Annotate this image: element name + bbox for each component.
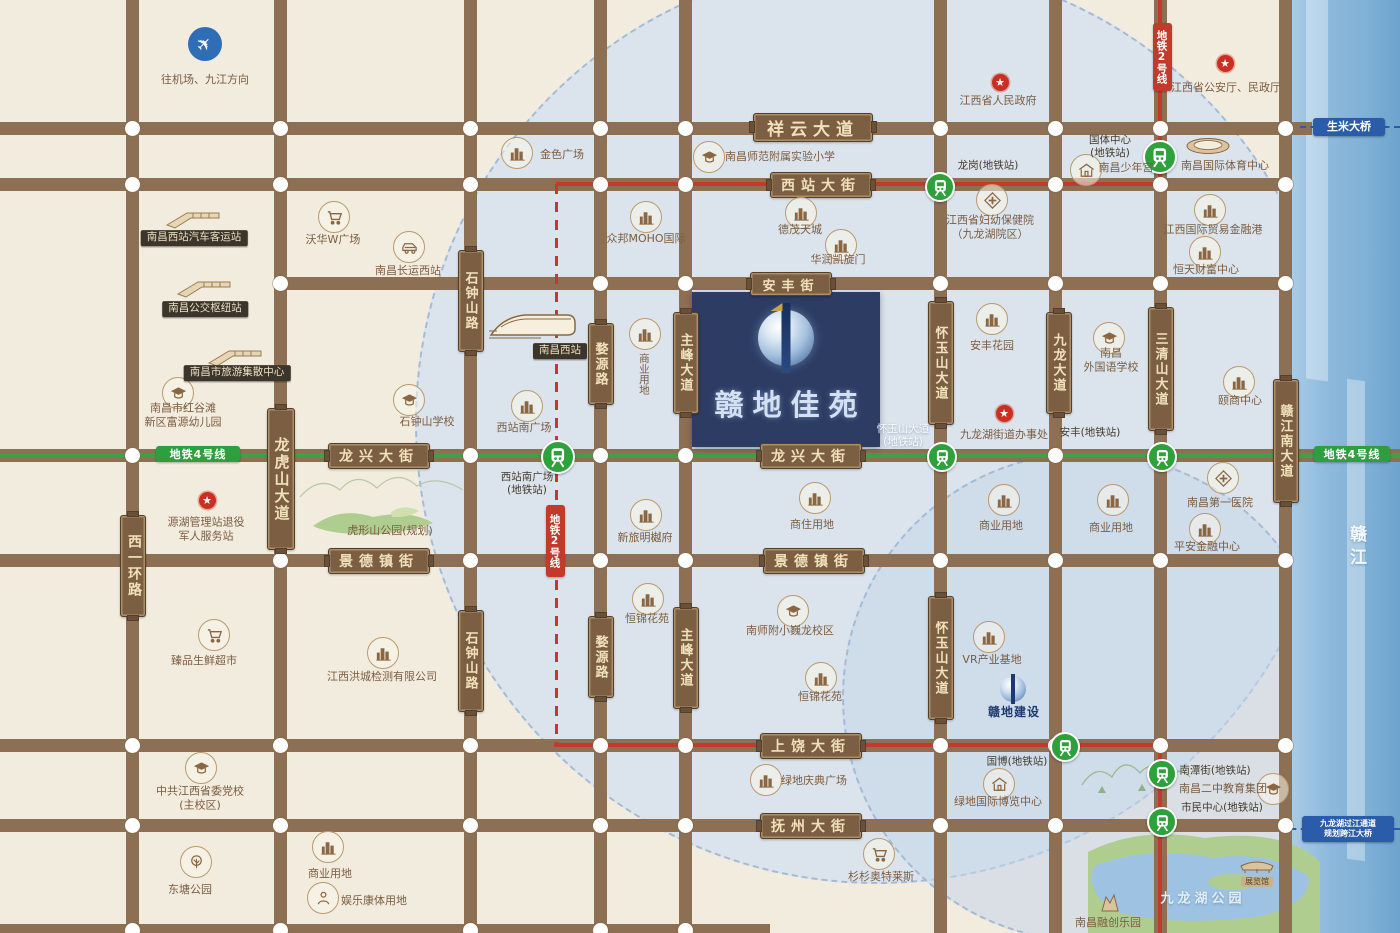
landmark-label: 绿地庆典广场: [781, 774, 847, 788]
metro-station-icon: [1147, 442, 1177, 472]
intersection-dot: [463, 121, 478, 136]
bldg-icon: [799, 482, 831, 514]
intersection-dot: [1278, 553, 1293, 568]
road-sign: 三清山大道: [1148, 307, 1174, 431]
road-vertical: [594, 0, 607, 933]
landmark-label: 江西国际贸易金融港: [1164, 223, 1263, 237]
landmark-label: 颐商中心: [1218, 394, 1262, 408]
stadium-icon: [1185, 137, 1231, 155]
intersection-dot: [125, 448, 140, 463]
landmark-label: 恒锦花苑: [798, 690, 842, 704]
intersection-dot: [273, 923, 288, 933]
river-name: 赣江: [1344, 525, 1369, 571]
gov-star-icon: ★: [199, 492, 216, 509]
property-block: 赣地佳苑: [692, 292, 880, 447]
intersection-dot: [933, 121, 948, 136]
landmark-label: 商业用地: [636, 353, 650, 395]
metro-station-icon: [1147, 759, 1177, 789]
bus-terminal-icon: [172, 274, 236, 300]
cross-icon: [976, 184, 1008, 216]
intersection-dot: [273, 276, 288, 291]
landmark-label: 江西洪城检测有限公司: [327, 670, 437, 684]
road-sign: 上饶大街: [760, 733, 862, 759]
metro-station-label: 国体中心 (地铁站): [1089, 134, 1131, 160]
landmark-label: 南昌市旅游集散中心: [184, 365, 291, 381]
intersection-dot: [678, 177, 693, 192]
landmark-label: 往机场、九江方向: [161, 73, 249, 87]
property-logo-icon: [758, 310, 814, 366]
highspeed-train-icon: [487, 307, 579, 341]
intersection-dot: [933, 276, 948, 291]
metro-line-badge: 地铁4号线: [156, 446, 240, 462]
metro-line-badge: 地铁4号线: [1314, 446, 1390, 462]
landmark-label: 南昌西站: [533, 343, 587, 359]
intersection-dot: [463, 738, 478, 753]
road-sign: 龙兴大街: [328, 443, 430, 469]
landmark-label: 臻品生鲜超市: [171, 654, 237, 668]
school-icon: [185, 752, 217, 784]
road-sign: 龙兴大街: [760, 443, 862, 469]
intersection-dot: [1048, 553, 1063, 568]
metro-station-icon: [1050, 732, 1080, 762]
road-sign: 婺源路: [588, 323, 614, 405]
cart-icon: [863, 838, 895, 870]
road-vertical: [679, 0, 692, 933]
metro-station-label: 市民中心(地铁站): [1181, 801, 1263, 814]
road-sign: 九龙大道: [1046, 312, 1072, 414]
landmark-label: 赣地建设: [988, 705, 1040, 721]
intersection-dot: [593, 923, 608, 933]
intersection-dot: [593, 276, 608, 291]
intersection-dot: [678, 553, 693, 568]
landmark-label: 沃华W广场: [306, 233, 361, 247]
intersection-dot: [933, 738, 948, 753]
road-sign: 祥云大道: [753, 113, 873, 142]
landmark-label: 商业用地: [979, 519, 1023, 533]
tree-icon: [180, 846, 212, 878]
intersection-dot: [273, 818, 288, 833]
intersection-dot: [933, 818, 948, 833]
school-icon: [777, 595, 809, 627]
intersection-dot: [1153, 553, 1168, 568]
property-name: 赣地佳苑: [705, 382, 866, 424]
intersection-dot: [463, 177, 478, 192]
road-sign: 赣江南大道: [1273, 379, 1299, 503]
road-sign: 西站大街: [770, 172, 872, 198]
car-icon: [393, 231, 425, 263]
landmark-label: 新旅明樾府: [618, 531, 673, 545]
intersection-dot: [1048, 448, 1063, 463]
landmark-label: 南昌长运西站: [375, 264, 441, 278]
bldg-icon: [630, 499, 662, 531]
landmark-label: 南昌师范附属实验小学: [725, 150, 835, 164]
intersection-dot: [593, 738, 608, 753]
landmark-label: 恒锦花苑: [625, 612, 669, 626]
landmark-label: 江西省妇幼保健院 （九龙湖院区）: [946, 214, 1034, 243]
landmark-label: 东塘公园: [168, 883, 212, 897]
landmark-label: 德茂天城: [778, 223, 822, 237]
metro-station-label: 安丰(地铁站): [1060, 426, 1121, 439]
intersection-dot: [1048, 818, 1063, 833]
landmark-label: 石钟山学校: [400, 415, 455, 429]
airplane-icon: ✈: [188, 27, 222, 61]
civic-building-icon: [1237, 856, 1277, 874]
metro-station-label: 西站南广场 (地铁站): [501, 471, 554, 497]
landmark-label: 绿地国际博览中心: [954, 795, 1042, 809]
landmark-label: 西站南广场: [497, 421, 552, 435]
landmark-label: 金色广场: [540, 148, 584, 162]
intersection-dot: [1278, 818, 1293, 833]
landmark-label: 娱乐康体用地: [341, 894, 407, 908]
metro-station-icon: [1147, 807, 1177, 837]
intersection-dot: [678, 818, 693, 833]
landmark-label: 商住用地: [790, 518, 834, 532]
bldg-icon: [312, 831, 344, 863]
intersection-dot: [1278, 738, 1293, 753]
landmark-label: 九龙湖街道办事处: [960, 428, 1048, 442]
road-sign: 景德镇街: [763, 548, 865, 574]
intersection-dot: [1153, 121, 1168, 136]
intersection-dot: [593, 553, 608, 568]
theme-park-icon: [1098, 893, 1122, 913]
metro-station-label: 怀玉山大道 (地铁站): [877, 423, 930, 449]
metro-station-label: 南潭街(地铁站): [1179, 764, 1250, 777]
road-horizontal: [0, 554, 1292, 567]
landmark-label: 九龙湖公园: [1160, 892, 1245, 909]
person-icon: [307, 882, 339, 914]
intersection-dot: [1278, 121, 1293, 136]
road-sign: 主峰大道: [673, 312, 699, 414]
intersection-dot: [593, 818, 608, 833]
intersection-dot: [273, 121, 288, 136]
metro-station-label: 龙岗(地铁站): [958, 159, 1019, 172]
bldg-icon: [632, 583, 664, 615]
landmark-label: 江西省公安厅、民政厅: [1171, 81, 1281, 95]
gov-star-icon: ★: [992, 74, 1009, 91]
road-sign: 主峰大道: [673, 607, 699, 709]
intersection-dot: [463, 553, 478, 568]
landmark-label: 恒天财富中心: [1173, 263, 1239, 277]
landmark-label: 南昌 外国语学校: [1084, 347, 1139, 376]
bridge-sign: 九龙湖过江通道 规划跨江大桥: [1302, 816, 1394, 842]
landmark-label: 南昌西站汽车客运站: [141, 230, 248, 246]
cross-icon: [1207, 462, 1239, 494]
intersection-dot: [125, 738, 140, 753]
road-sign: 抚州大街: [760, 813, 862, 839]
intersection-dot: [1048, 276, 1063, 291]
metro-station-label: 国博(地铁站): [987, 755, 1048, 768]
intersection-dot: [933, 553, 948, 568]
location-map: 赣江 赣地佳苑 祥云大道西站大街安丰街龙兴大街龙兴大街景德镇街景德镇街上饶大街抚…: [0, 0, 1400, 933]
landmark-label: 源湖管理站退役 军人服务站: [168, 516, 245, 545]
road-sign: 怀玉山大道: [928, 301, 954, 425]
gov-star-icon: ★: [996, 405, 1013, 422]
bridge-sign: 生米大桥: [1313, 118, 1385, 136]
intersection-dot: [463, 818, 478, 833]
bldg-icon: [976, 303, 1008, 335]
bldg-icon: [973, 621, 1005, 653]
road-vertical: [126, 0, 139, 933]
road-sign: 龙虎山大道: [267, 408, 295, 550]
school-icon: [693, 141, 725, 173]
landmark-label: 南昌公交枢纽站: [162, 301, 248, 317]
intersection-dot: [125, 177, 140, 192]
landmark-label: 南昌市红谷滩 新区富源幼儿园: [145, 402, 222, 431]
landmark-label: 商业用地: [308, 867, 352, 881]
intersection-dot: [463, 923, 478, 933]
bldg-icon: [750, 764, 782, 796]
landmark-label: 江西省人民政府: [960, 94, 1037, 108]
intersection-dot: [593, 177, 608, 192]
road-sign: 婺源路: [588, 616, 614, 698]
metro-line-badge: 地铁2号线: [546, 505, 565, 577]
road-vertical: [464, 0, 477, 933]
school-icon: [393, 384, 425, 416]
bldg-icon: [1097, 484, 1129, 516]
road-horizontal: [0, 819, 1292, 832]
bldg-icon: [988, 484, 1020, 516]
intersection-dot: [1153, 738, 1168, 753]
landmark-label: 南昌少年宫: [1099, 161, 1154, 175]
road-sign: 景德镇街: [328, 548, 430, 574]
landmark-label: 安丰花园: [970, 339, 1014, 353]
intersection-dot: [678, 121, 693, 136]
intersection-dot: [125, 923, 140, 933]
bldg-icon: [1194, 194, 1226, 226]
intersection-dot: [273, 738, 288, 753]
landmark-label: 展览馆: [1241, 877, 1273, 887]
intersection-dot: [678, 276, 693, 291]
road-sign: 西一环路: [120, 515, 146, 617]
road-sign: 安丰街: [750, 272, 832, 296]
landmark-label: VR产业基地: [962, 653, 1021, 667]
road-sign: 石钟山路: [458, 610, 484, 712]
intersection-dot: [1278, 276, 1293, 291]
intersection-dot: [678, 923, 693, 933]
road-vertical: [1049, 0, 1062, 933]
intersection-dot: [1278, 177, 1293, 192]
metro-station-icon: [927, 442, 957, 472]
intersection-dot: [678, 738, 693, 753]
intersection-dot: [273, 553, 288, 568]
intersection-dot: [1048, 121, 1063, 136]
intersection-dot: [1153, 177, 1168, 192]
intersection-dot: [678, 448, 693, 463]
bldg-icon: [629, 318, 661, 350]
intersection-dot: [125, 818, 140, 833]
bldg-icon: [511, 390, 543, 422]
intersection-dot: [593, 448, 608, 463]
landmark-label: 南昌国际体育中心: [1181, 159, 1269, 173]
river-ganjiang: [1292, 0, 1400, 933]
landmark-label: 平安金融中心: [1174, 540, 1240, 554]
intersection-dot: [593, 121, 608, 136]
intersection-dot: [1153, 276, 1168, 291]
intersection-dot: [273, 177, 288, 192]
intersection-dot: [125, 121, 140, 136]
road-horizontal: [0, 924, 770, 933]
metro-station-icon: [925, 172, 955, 202]
landmark-label: 虎形山公园(规划): [347, 524, 433, 538]
landmark-label: 杉杉奥特莱斯: [848, 870, 914, 884]
landmark-label: 华润凯旋门: [811, 253, 866, 267]
landmark-label: 众邦MOHO国际: [606, 232, 685, 246]
road-horizontal: [0, 122, 1312, 135]
landmark-label: 南昌二中教育集团: [1179, 782, 1267, 796]
road-sign: 石钟山路: [458, 250, 484, 352]
metro-line-badge: 地铁2号线: [1153, 23, 1172, 91]
intersection-dot: [463, 448, 478, 463]
intersection-dot: [1048, 177, 1063, 192]
landmark-label: 南昌第一医院: [1187, 496, 1253, 510]
landmark-label: 南师附小巍龙校区: [746, 624, 834, 638]
cart-icon: [198, 619, 230, 651]
bldg-icon: [630, 201, 662, 233]
gov-star-icon: ★: [1217, 55, 1234, 72]
developer-logo-icon: [1000, 676, 1026, 702]
landmark-label: 南昌融创乐园: [1075, 916, 1141, 930]
landmark-label: 商业用地: [1089, 521, 1133, 535]
bldg-icon: [367, 637, 399, 669]
bus-terminal-icon: [161, 205, 225, 231]
metro-station-icon: [541, 440, 575, 474]
bldg-icon: [501, 137, 533, 169]
landmark-label: 中共江西省委党校 (主校区): [156, 785, 244, 814]
road-sign: 怀玉山大道: [928, 596, 954, 720]
cart-icon: [318, 201, 350, 233]
